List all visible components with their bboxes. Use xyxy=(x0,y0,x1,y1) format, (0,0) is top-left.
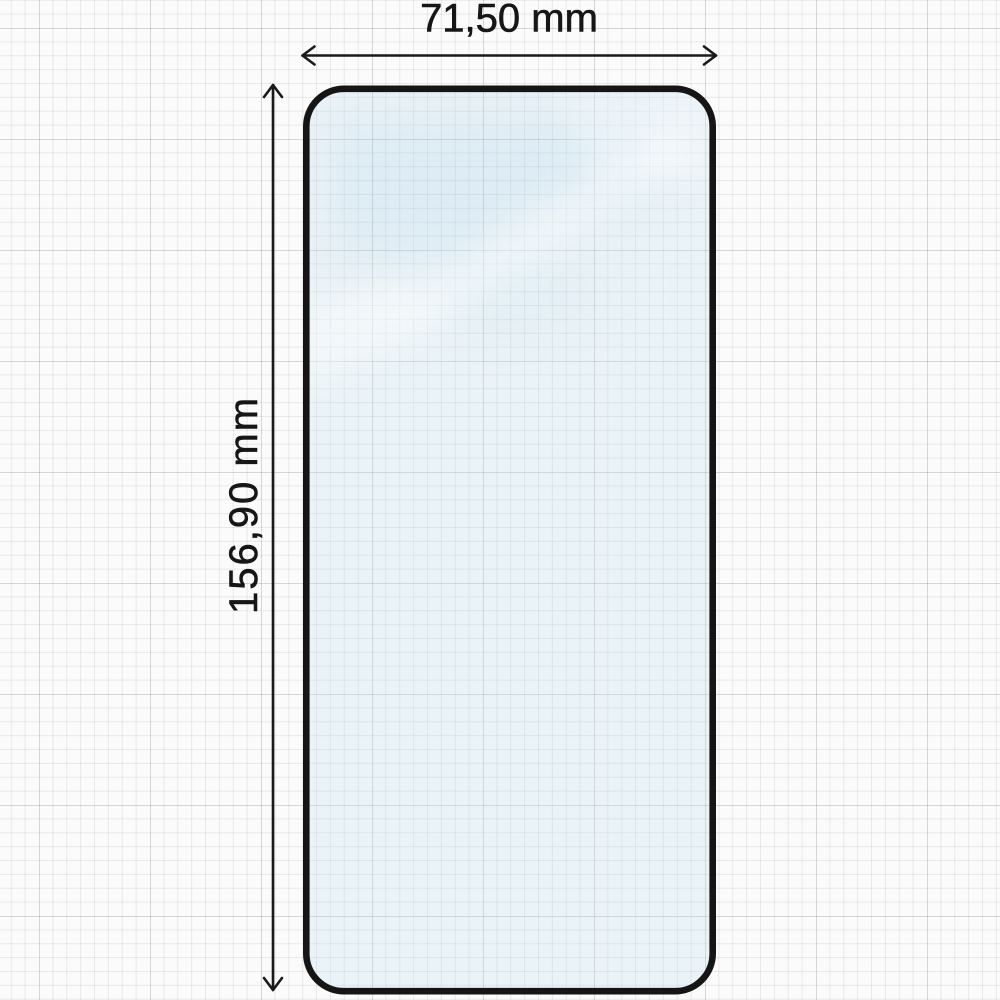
svg-text:156,90 mm: 156,90 mm xyxy=(222,396,266,614)
svg-text:71,50 mm: 71,50 mm xyxy=(420,0,598,41)
